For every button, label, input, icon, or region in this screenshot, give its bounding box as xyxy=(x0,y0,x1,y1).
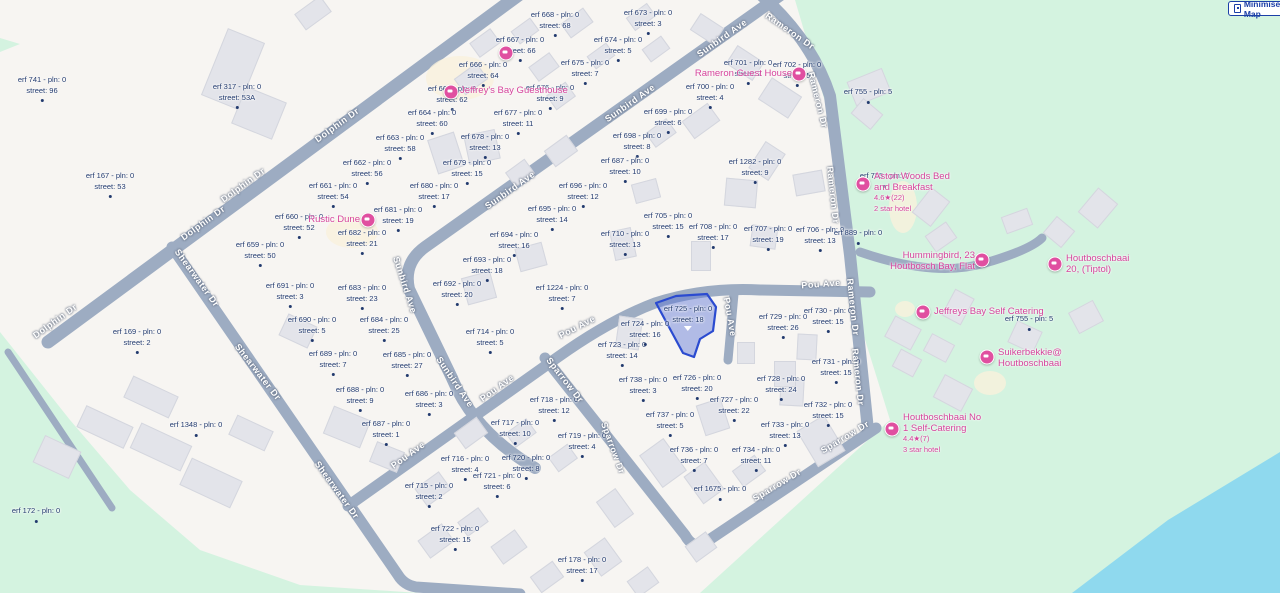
minimise-button-label: Minimise Map xyxy=(1244,0,1280,19)
parcel-label: erf 664 - pln: 0street: 60 xyxy=(408,108,456,135)
lodging-icon[interactable] xyxy=(980,350,995,365)
parcel-marker xyxy=(385,443,388,446)
parcel-label: erf 680 - pln: 0street: 17 xyxy=(410,181,458,208)
parcel-marker xyxy=(549,107,552,110)
parcel-marker xyxy=(361,307,364,310)
parcel-marker xyxy=(747,82,750,85)
parcel-label: erf 733 - pln: 0street: 13 xyxy=(761,420,809,447)
parcel-label: erf 693 - pln: 0street: 18 xyxy=(463,255,511,282)
parcel-marker xyxy=(667,235,670,238)
parcel-marker xyxy=(827,424,830,427)
parcel-label: erf 1224 - pln: 0street: 7 xyxy=(536,283,589,310)
collapse-icon xyxy=(1234,4,1241,13)
parcel-marker xyxy=(1028,328,1031,331)
parcel-label: erf 172 - pln: 0 xyxy=(12,506,60,523)
building xyxy=(737,342,755,364)
parcel-label: erf 729 - pln: 0street: 26 xyxy=(759,312,807,339)
parcel-marker xyxy=(311,339,314,342)
parcel-marker xyxy=(298,236,301,239)
parcel-marker xyxy=(581,579,584,582)
parcel-marker xyxy=(669,434,672,437)
parcel-label: erf 700 - pln: 0street: 4 xyxy=(686,82,734,109)
parcel-marker xyxy=(733,419,736,422)
parcel-label: erf 889 - pln: 0 xyxy=(834,228,882,245)
parcel-label: erf 686 - pln: 0street: 3 xyxy=(405,389,453,416)
parcel-label: erf 666 - pln: 0street: 64 xyxy=(459,60,507,87)
parcel-label: erf 692 - pln: 0street: 20 xyxy=(433,279,481,306)
poi-label-aston-woods[interactable]: Aston Woods Bedand Breakfast4.6★(22)2 st… xyxy=(874,172,950,214)
poi-label-rameron-guest-house[interactable]: Rameron Guest House xyxy=(695,69,792,80)
parcel-marker xyxy=(454,548,457,551)
parcel-marker xyxy=(693,469,696,472)
parcel-label: erf 668 - pln: 0street: 68 xyxy=(531,10,579,37)
parcel-label: erf 683 - pln: 0street: 23 xyxy=(338,283,386,310)
parcel-label: erf 1348 - pln: 0 xyxy=(170,420,223,437)
parcel-marker xyxy=(554,34,557,37)
parcel-marker xyxy=(753,181,756,184)
parcel-marker xyxy=(519,59,522,62)
parcel-marker xyxy=(867,101,870,104)
parcel-label: erf 738 - pln: 0street: 3 xyxy=(619,375,667,402)
parcel-marker xyxy=(456,303,459,306)
poi-label-rustic-dune[interactable]: Rustic Dune xyxy=(308,215,360,226)
parcel-marker xyxy=(796,84,799,87)
sand-patch xyxy=(895,301,915,317)
parcel-marker xyxy=(332,205,335,208)
parcel-label: erf 725 - pln: 0street: 18 xyxy=(664,304,712,331)
parcel-marker xyxy=(486,279,489,282)
parcel-marker xyxy=(489,351,492,354)
lodging-icon[interactable] xyxy=(975,253,990,268)
parcel-label: erf 734 - pln: 0street: 11 xyxy=(732,445,780,472)
parcel-marker xyxy=(361,252,364,255)
parcel-marker xyxy=(647,32,650,35)
parcel-label: erf 178 - pln: 0street: 17 xyxy=(558,555,606,582)
parcel-marker xyxy=(624,253,627,256)
lodging-icon[interactable] xyxy=(1048,257,1063,272)
lodging-icon[interactable] xyxy=(792,67,807,82)
parcel-marker xyxy=(383,339,386,342)
parcel-marker xyxy=(551,228,554,231)
parcel-marker xyxy=(667,131,670,134)
parcel-label: erf 167 - pln: 0street: 53 xyxy=(86,171,134,198)
parcel-marker xyxy=(582,205,585,208)
lodging-icon[interactable] xyxy=(885,422,900,437)
parcel-marker xyxy=(433,205,436,208)
parcel-marker xyxy=(644,343,647,346)
parcel-marker xyxy=(709,106,712,109)
parcel-label: erf 684 - pln: 0street: 25 xyxy=(360,315,408,342)
parcel-marker xyxy=(41,99,44,102)
parcel-marker xyxy=(584,82,587,85)
parcel-marker xyxy=(236,106,239,109)
parcel-marker xyxy=(513,254,516,257)
parcel-label: erf 677 - pln: 0street: 11 xyxy=(494,108,542,135)
parcel-marker xyxy=(517,132,520,135)
parcel-label: erf 691 - pln: 0street: 3 xyxy=(266,281,314,308)
parcel-marker xyxy=(359,409,362,412)
parcel-label: erf 727 - pln: 0street: 22 xyxy=(710,395,758,422)
parcel-marker xyxy=(624,180,627,183)
map-canvas[interactable]: erf 668 - pln: 0street: 68erf 673 - pln:… xyxy=(0,0,1280,593)
parcel-marker xyxy=(289,305,292,308)
parcel-label: erf 699 - pln: 0street: 6 xyxy=(644,107,692,134)
parcel-marker xyxy=(35,520,38,523)
parcel-label: erf 678 - pln: 0street: 13 xyxy=(461,132,509,159)
parcel-marker xyxy=(617,59,620,62)
parcel-marker xyxy=(464,478,467,481)
parcel-label: erf 736 - pln: 0street: 7 xyxy=(670,445,718,472)
parcel-marker xyxy=(466,182,469,185)
parcel-marker xyxy=(784,444,787,447)
parcel-label: erf 755 - pln: 5 xyxy=(844,87,892,104)
parcel-label: erf 722 - pln: 0street: 15 xyxy=(431,524,479,551)
parcel-label: erf 695 - pln: 0street: 14 xyxy=(528,204,576,231)
parcel-marker xyxy=(496,495,499,498)
parcel-marker xyxy=(525,477,528,480)
parcel-label: erf 718 - pln: 0street: 12 xyxy=(530,395,578,422)
parcel-label: erf 661 - pln: 0street: 54 xyxy=(309,181,357,208)
parcel-label: erf 673 - pln: 0street: 3 xyxy=(624,8,672,35)
parcel-label: erf 708 - pln: 0street: 17 xyxy=(689,222,737,249)
lodging-icon[interactable] xyxy=(444,85,459,100)
parcel-marker xyxy=(399,157,402,160)
parcel-marker xyxy=(767,248,770,251)
poi-label-jeffreys-bay-self-catering[interactable]: Jeffreys Bay Self Catering xyxy=(934,307,1044,318)
parcel-label: erf 685 - pln: 0street: 27 xyxy=(383,350,431,377)
parcel-label: erf 659 - pln: 0street: 50 xyxy=(236,240,284,267)
parcel-marker xyxy=(431,132,434,135)
parcel-label: erf 1282 - pln: 0street: 9 xyxy=(729,157,782,184)
parcel-label: erf 720 - pln: 0street: 8 xyxy=(502,453,550,480)
parcel-marker xyxy=(332,373,335,376)
parcel-marker xyxy=(712,246,715,249)
parcel-label: erf 707 - pln: 0street: 19 xyxy=(744,224,792,251)
parcel-marker xyxy=(782,336,785,339)
lodging-icon[interactable] xyxy=(916,305,931,320)
parcel-label: erf 728 - pln: 0street: 24 xyxy=(757,374,805,401)
poi-label-suikerbekkie[interactable]: Suikerbekkie@Houtboschbaai xyxy=(998,348,1062,369)
parcel-marker xyxy=(366,182,369,185)
parcel-label: erf 698 - pln: 0street: 8 xyxy=(613,131,661,158)
parcel-label: erf 317 - pln: 0street: 53A xyxy=(213,82,261,109)
parcel-marker xyxy=(621,364,624,367)
parcel-label: erf 663 - pln: 0street: 58 xyxy=(376,133,424,160)
parcel-marker xyxy=(857,242,860,245)
parcel-marker xyxy=(428,505,431,508)
parcel-label: erf 169 - pln: 0street: 2 xyxy=(113,327,161,354)
lodging-icon[interactable] xyxy=(361,213,376,228)
parcel-marker xyxy=(780,398,783,401)
selected-parcel-marker xyxy=(684,326,692,331)
minimise-button[interactable]: Minimise Map xyxy=(1228,1,1280,16)
parcel-marker xyxy=(560,307,563,310)
parcel-label: erf 732 - pln: 0street: 15 xyxy=(804,400,852,427)
green-area xyxy=(0,38,20,52)
parcel-marker xyxy=(194,434,197,437)
parcel-label: erf 719 - pln: 0street: 4 xyxy=(558,431,606,458)
parcel-marker xyxy=(259,264,262,267)
parcel-label: erf 690 - pln: 0street: 5 xyxy=(288,315,336,342)
parcel-label: erf 714 - pln: 0street: 5 xyxy=(466,327,514,354)
parcel-label: erf 688 - pln: 0street: 9 xyxy=(336,385,384,412)
lodging-icon[interactable] xyxy=(499,46,514,61)
parcel-label: erf 741 - pln: 0street: 96 xyxy=(18,75,66,102)
parcel-label: erf 694 - pln: 0street: 16 xyxy=(490,230,538,257)
parcel-marker xyxy=(136,351,139,354)
parcel-marker xyxy=(827,330,830,333)
lodging-icon[interactable] xyxy=(856,177,871,192)
parcel-marker xyxy=(428,413,431,416)
parcel-label: erf 715 - pln: 0street: 2 xyxy=(405,481,453,508)
parcel-label: erf 675 - pln: 0street: 7 xyxy=(561,58,609,85)
parcel-label: erf 737 - pln: 0street: 5 xyxy=(646,410,694,437)
parcel-label: erf 717 - pln: 0street: 10 xyxy=(491,418,539,445)
parcel-label: erf 710 - pln: 0street: 13 xyxy=(601,229,649,256)
poi-label-houtboschbaai-20[interactable]: Houtboschbaai20, (Tiptol) xyxy=(1066,254,1129,275)
poi-label-jeffreys-bay-guesthouse[interactable]: Jeffrey's Bay Guesthouse xyxy=(460,86,568,97)
parcel-marker xyxy=(406,374,409,377)
sand-patch xyxy=(974,371,1006,395)
parcel-label: erf 682 - pln: 0street: 21 xyxy=(338,228,386,255)
parcel-marker xyxy=(835,381,838,384)
parcel-marker xyxy=(553,419,556,422)
parcel-label: erf 687 - pln: 0street: 10 xyxy=(601,156,649,183)
parcel-marker xyxy=(514,442,517,445)
parcel-marker xyxy=(109,195,112,198)
parcel-label: erf 1675 - pln: 0 xyxy=(694,484,747,501)
parcel-label: erf 689 - pln: 0street: 7 xyxy=(309,349,357,376)
poi-label-houtboschbaai-no1[interactable]: Houtboschbaai No1 Self-Catering4.4★(7)3 … xyxy=(903,413,981,455)
poi-label-hummingbird[interactable]: Hummingbird, 23Houtbosch Bay, Flat xyxy=(890,251,975,272)
parcel-marker xyxy=(755,469,758,472)
parcel-marker xyxy=(819,249,822,252)
parcel-label: erf 724 - pln: 0street: 16 xyxy=(621,319,669,346)
parcel-marker xyxy=(642,399,645,402)
parcel-marker xyxy=(718,498,721,501)
parcel-marker xyxy=(397,229,400,232)
parcel-label: erf 687 - pln: 0street: 1 xyxy=(362,419,410,446)
parcel-label: erf 705 - pln: 0street: 15 xyxy=(644,211,692,238)
parcel-label: erf 730 - pln: 0street: 15 xyxy=(804,306,852,333)
parcel-marker xyxy=(696,397,699,400)
parcel-marker xyxy=(581,455,584,458)
